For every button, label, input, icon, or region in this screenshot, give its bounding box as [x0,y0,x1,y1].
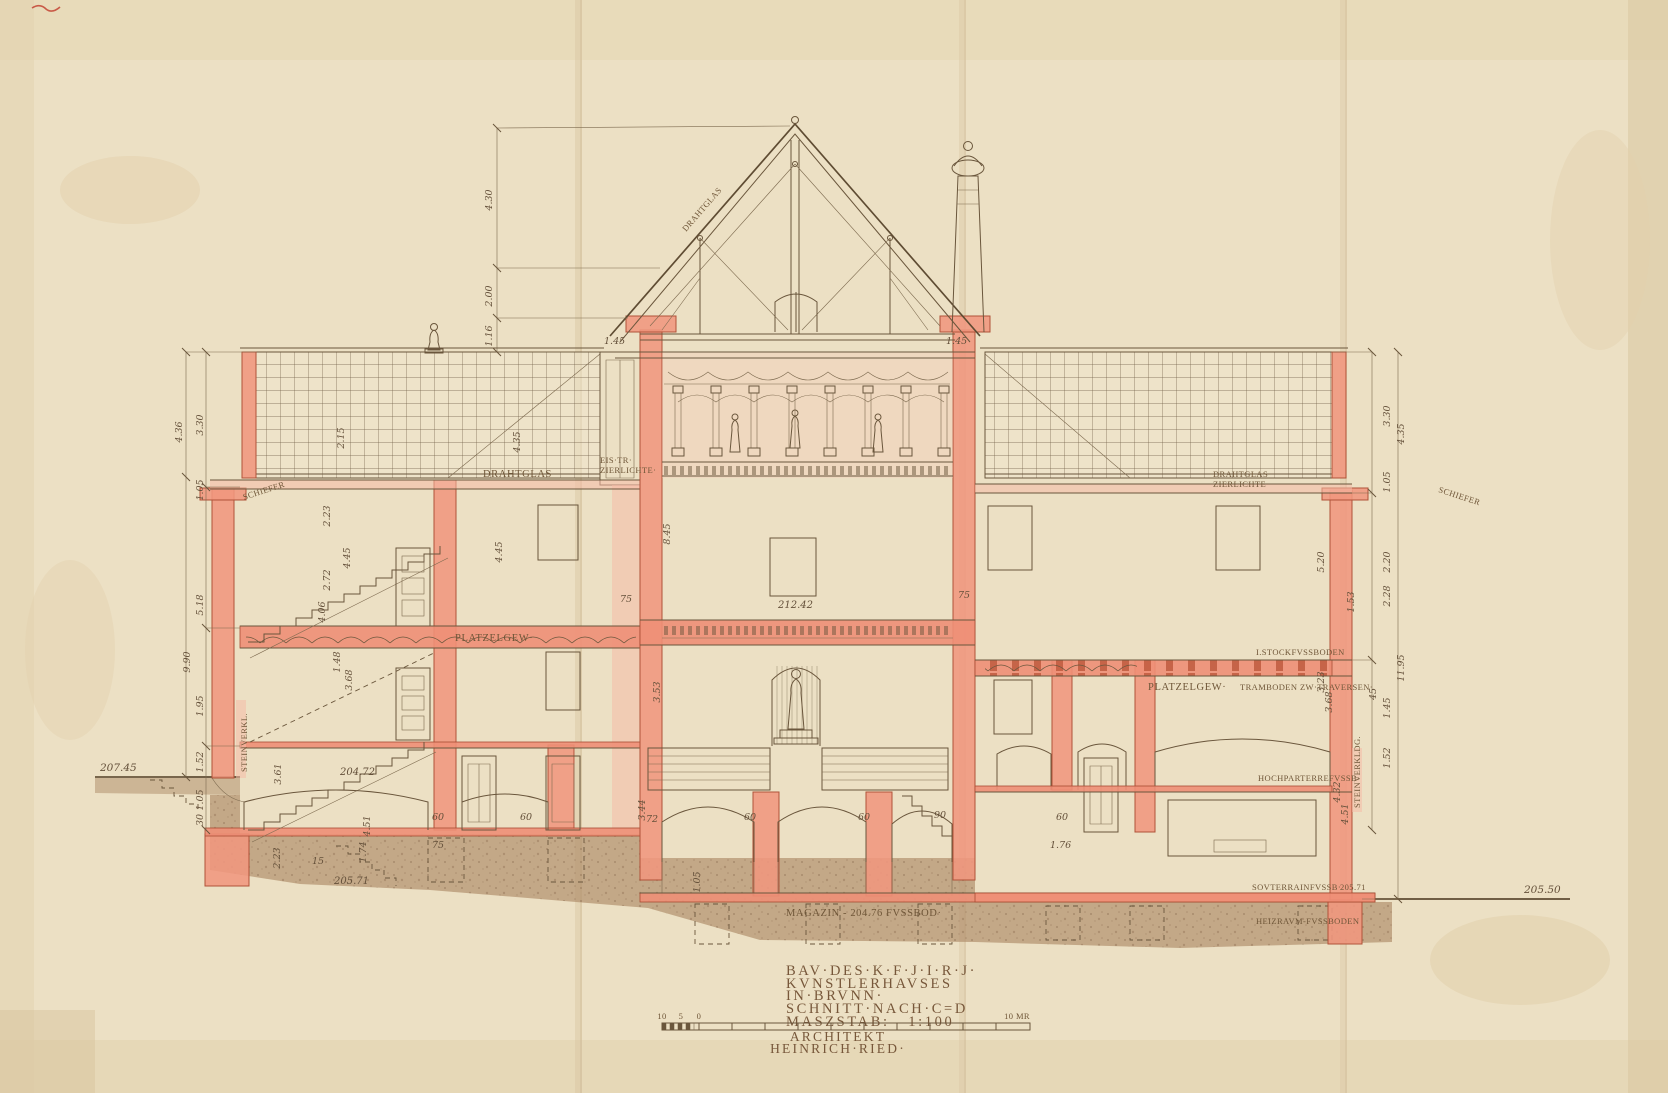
dim-label: 4.36 [174,421,185,443]
paper-stain [60,156,200,224]
dim-label: 1.76 [1050,840,1071,851]
foundation-left [205,834,249,886]
dim-label: 2.23 [322,505,333,527]
dim-label: 9.90 [182,651,193,672]
skylight-glass-roof-left [256,352,600,478]
dim-label: 1.16 [484,325,495,346]
dim-label: 3.68 [344,669,355,690]
dim-label: 1.45 [604,336,625,347]
hall-wall-left [640,330,662,880]
dim-label: 2.23 [272,847,283,869]
dim-label: 1.05 [692,871,703,892]
dim-label: 72 [646,814,658,825]
level-left-terrain: 207.45 [99,762,137,774]
scale-label-5: 5 [679,1011,684,1021]
dim-label: 1.95 [195,695,206,716]
dim-label: 2.28 [1382,585,1393,607]
level-right-terrain: 205.50 [1523,884,1561,896]
dim-label: 3.23 [1316,671,1327,692]
dim-label: 1.05 [195,479,206,500]
label-souterrain: SOVTERRAINFVSSB· [1252,882,1341,892]
label-hochparterre: HOCHPARTERREFVSSB· [1258,773,1360,783]
scale-label-0: 0 [697,1011,702,1021]
dim-label: 4.35 [512,431,523,453]
dim-label: 5.18 [195,594,206,615]
level-first-floor: 212.42 [777,600,813,611]
eaves-cornice [626,316,676,332]
dim-label: 8.45 [662,523,673,544]
dim-label: 1.45 [946,336,967,347]
dim-label: 1.45 [1382,697,1393,718]
dim-label: 1.53 [1346,591,1357,612]
dim-label: 75 [620,594,632,605]
dim-label: 4.45 [494,541,505,563]
label-drahtglas-left: DRAHTGLAS [483,469,552,480]
hall-floor-band [640,620,975,645]
dim-label: 60 [744,812,756,823]
dim-label: 1.05 [1382,471,1393,492]
dim-label: 4.51 [1340,803,1351,825]
dim-label: 1.52 [1382,747,1393,768]
dim-label: 3.53 [652,681,663,702]
dim-label: 45 [1368,688,1379,701]
label-platzelgew-right: PLATZELGEW· [1148,682,1226,693]
dim-label: 60 [1056,812,1068,823]
label-zierlichte-right: ZIERLICHTE· [1213,479,1269,489]
level-stair-low: 205.71 [333,876,369,887]
skylight-glass-roof-right [985,352,1332,478]
scale-label-10: 10 [657,1011,666,1021]
architectural-drawing-sheet: DRAHTGLAS EIS·TR· ZIERLICHTE· DRAHTGLAS·… [0,0,1668,1093]
dim-label: 4.06 [317,601,328,623]
dim-label: 2.15 [336,427,347,449]
dim-label: 4.51 [362,815,373,837]
dim-label: 5.20 [1316,551,1327,572]
label-tramboden: TRAMBODEN ZW·TRAVERSEN· [1240,682,1373,692]
parapet-pier [242,352,256,478]
label-zierlichte-left: ZIERLICHTE· [600,465,656,475]
dim-label: 60 [858,812,870,823]
dim-label: 2.72 [322,569,333,591]
dim-label: 60 [520,812,532,823]
dim-label: 4.35 [1396,423,1407,445]
hall-wall-right [953,330,975,880]
label-drahtglas-right: DRAHTGLAS· [1213,469,1271,479]
title-line-5: MASZSTAB: 1:100 [786,1014,954,1030]
cornice-left [200,488,246,500]
scale-label-10m: 10 MR [1004,1011,1030,1021]
dim-label: 2.20 [1382,551,1393,573]
dim-label: 1.74 [358,841,369,862]
dim-label: 1.48 [332,651,343,672]
interior-pier [1052,660,1072,790]
label-steinverkl-right: STEINVERKLDG. [1352,736,1362,808]
label-platzelgew-left: PLATZELGEW· [455,633,533,644]
label-heizraum: HEIZRAVM-FVSSBODEN [1256,916,1359,926]
label-magazin: MAGAZIN - 204.76 FVSSBOD· [786,908,942,919]
niche-and-statue [772,666,820,746]
dim-label: 30 [195,814,206,826]
dim-label: 75 [958,590,970,601]
dim-label: 4.30 [484,189,495,211]
exterior-wall-left [212,488,234,778]
dim-label: 11.95 [1396,654,1407,681]
dim-label: 1.52 [195,751,206,772]
dim-label: 4.45 [342,547,353,569]
hall-ceiling-arcade [615,352,975,478]
label-steinverkl-left: STEINVERKL. [239,713,249,772]
tramboden-band [975,660,1352,676]
dim-label: 2.00 [484,285,495,307]
dim-label: 15 [312,856,324,867]
title-architect-name: HEINRICH·RIED· [770,1041,906,1056]
label-souterrain-level: 205.71 [1340,882,1366,892]
dim-label: 90 [934,810,946,821]
dim-label: 3.30 [1382,405,1393,426]
interior-pier [434,480,456,830]
dim-label: 60 [432,812,444,823]
dim-label: 4.32 [1332,781,1343,803]
dim-label: 3.61 [273,763,284,784]
dim-label: 3.68 [1324,691,1335,712]
label-stockfussboden: I.STOCKFVSSBODEN [1256,647,1345,657]
label-eis-tr: EIS·TR· [600,455,632,465]
dim-label: 1.05 [195,789,206,810]
parapet-pier [1332,352,1346,478]
dim-label: 75 [432,840,444,851]
dim-label: 3.30 [195,414,206,435]
level-stair-mid: 204.72 [339,767,375,778]
